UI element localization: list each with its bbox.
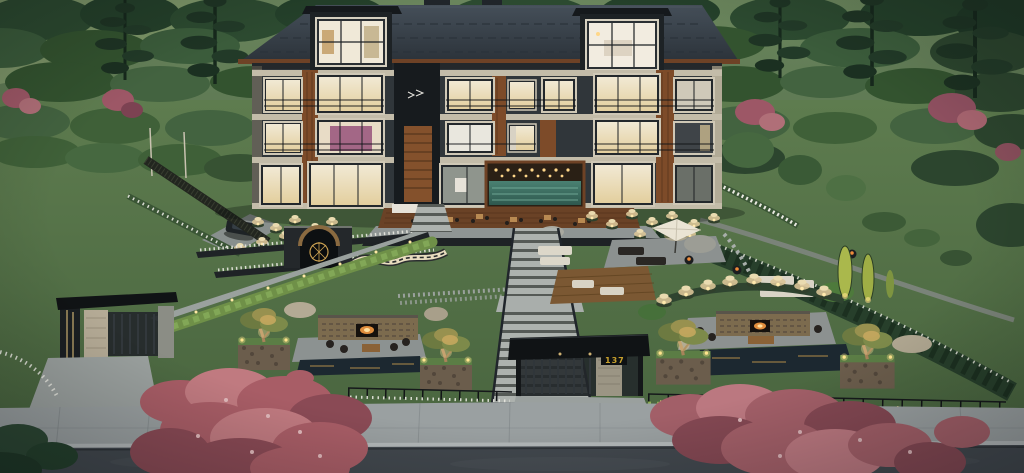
architectural-rendering: 137: [0, 0, 1024, 473]
vignette: [0, 0, 1024, 473]
